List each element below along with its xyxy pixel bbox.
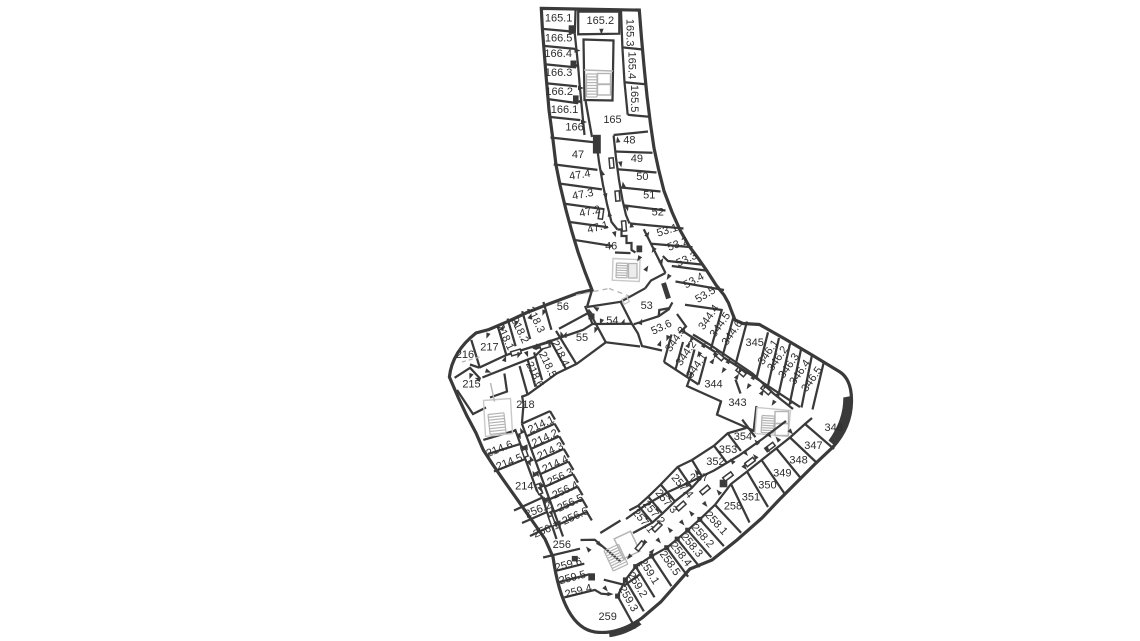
svg-text:52: 52 (652, 206, 664, 218)
svg-text:166.2: 166.2 (545, 86, 573, 98)
svg-text:350: 350 (758, 480, 776, 492)
svg-text:54: 54 (606, 315, 618, 327)
svg-text:259: 259 (599, 611, 617, 623)
svg-text:166.3: 166.3 (545, 67, 573, 79)
svg-text:353: 353 (719, 444, 737, 456)
svg-text:166.4: 166.4 (544, 48, 572, 60)
svg-text:50: 50 (636, 171, 648, 183)
svg-text:165.1: 165.1 (545, 12, 573, 24)
svg-text:352: 352 (706, 456, 724, 468)
svg-text:166: 166 (565, 122, 583, 134)
svg-text:166.1: 166.1 (551, 104, 579, 116)
svg-text:56: 56 (557, 301, 569, 313)
svg-text:165: 165 (603, 114, 621, 126)
svg-text:165.2: 165.2 (587, 15, 615, 27)
svg-text:258: 258 (724, 500, 742, 512)
svg-text:343: 343 (728, 397, 746, 409)
svg-text:165.3: 165.3 (623, 19, 635, 47)
svg-text:46: 46 (605, 241, 617, 253)
svg-text:53: 53 (641, 300, 653, 312)
svg-text:48: 48 (623, 134, 635, 146)
svg-text:51: 51 (643, 190, 655, 202)
svg-text:165.4: 165.4 (626, 52, 638, 80)
svg-text:257: 257 (690, 472, 708, 484)
svg-text:346: 346 (825, 422, 843, 434)
svg-text:348: 348 (789, 455, 807, 467)
svg-text:354: 354 (734, 431, 752, 443)
svg-text:218: 218 (516, 399, 534, 411)
svg-text:256: 256 (553, 539, 571, 551)
svg-text:166.5: 166.5 (545, 33, 573, 45)
svg-text:49: 49 (631, 153, 643, 165)
svg-text:347: 347 (804, 440, 822, 452)
svg-text:216: 216 (456, 349, 474, 361)
svg-text:345: 345 (746, 337, 764, 349)
svg-text:165.5: 165.5 (628, 85, 640, 113)
svg-text:55: 55 (576, 332, 588, 344)
svg-text:349: 349 (773, 468, 791, 480)
svg-text:215: 215 (462, 378, 480, 390)
svg-text:344: 344 (704, 378, 722, 390)
svg-text:47: 47 (572, 149, 584, 161)
svg-text:217: 217 (480, 341, 498, 353)
svg-text:214: 214 (515, 481, 533, 493)
svg-text:351: 351 (742, 492, 760, 504)
